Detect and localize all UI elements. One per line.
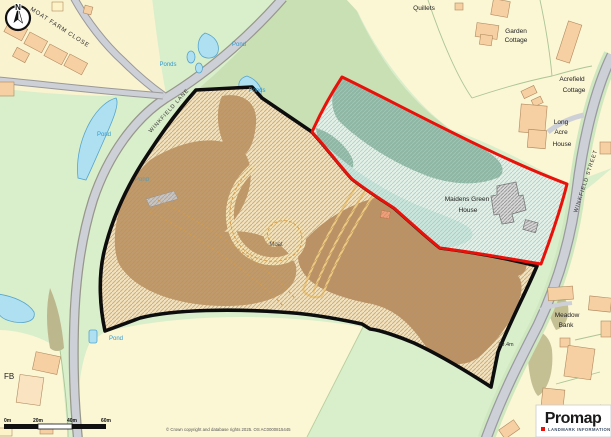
- compass-north-label: N: [15, 3, 21, 12]
- label-long-acre-3: House: [553, 141, 572, 148]
- promap-red-square: [541, 427, 545, 431]
- scale-seg-3: [72, 424, 106, 429]
- scale-tick-3: 60m: [101, 418, 112, 424]
- label-acrefield-2: Cottage: [563, 87, 586, 94]
- scale-tick-0: 0m: [4, 418, 12, 424]
- label-long-acre-2: Acre: [554, 129, 568, 136]
- label-spot-height: 89.4m: [498, 342, 514, 348]
- scale-seg-1: [4, 424, 38, 429]
- label-meadow-bank-2: Bank: [559, 322, 575, 329]
- label-maidens-green-2: House: [459, 207, 478, 214]
- scale-tick-1: 20m: [33, 418, 44, 424]
- label-pond-4: Pond: [109, 336, 123, 342]
- pond-tiny-bottom: [89, 330, 97, 343]
- scale-tick-2: 40m: [67, 418, 78, 424]
- label-garden-cottage-2: Cottage: [505, 37, 528, 44]
- map-svg: MOAT FARM CLOSE WINKFIELD LANE WINKFIELD…: [0, 0, 611, 437]
- label-moat: Moat: [269, 242, 283, 248]
- label-pond-2: Pond: [232, 42, 246, 48]
- label-maidens-green-1: Maidens Green: [445, 196, 490, 203]
- promap-logo: Promap LANDMARK INFORMATION: [536, 405, 611, 437]
- os-copyright: © Crown copyright and database rights 20…: [166, 427, 291, 432]
- label-quillets: Quillets: [413, 5, 435, 12]
- label-fb: FB: [4, 372, 14, 381]
- label-acrefield-1: Acrefield: [559, 76, 585, 83]
- pond-tiny-1: [187, 51, 195, 63]
- label-ponds-1: Ponds: [159, 62, 176, 68]
- scale-seg-2: [38, 424, 72, 429]
- label-meadow-bank-1: Meadow: [555, 312, 580, 319]
- promap-tagline: LANDMARK INFORMATION: [548, 427, 611, 432]
- promap-map-canvas[interactable]: MOAT FARM CLOSE WINKFIELD LANE WINKFIELD…: [0, 0, 611, 437]
- label-long-acre-1: Long: [554, 119, 569, 126]
- label-pond-1: Pond: [97, 132, 111, 138]
- label-garden-cottage-1: Garden: [505, 28, 527, 35]
- label-ponds-2: Ponds: [248, 88, 265, 94]
- pond-tiny-2: [196, 63, 203, 73]
- label-pond-3: Pond: [135, 177, 149, 183]
- promap-brand: Promap: [545, 410, 602, 427]
